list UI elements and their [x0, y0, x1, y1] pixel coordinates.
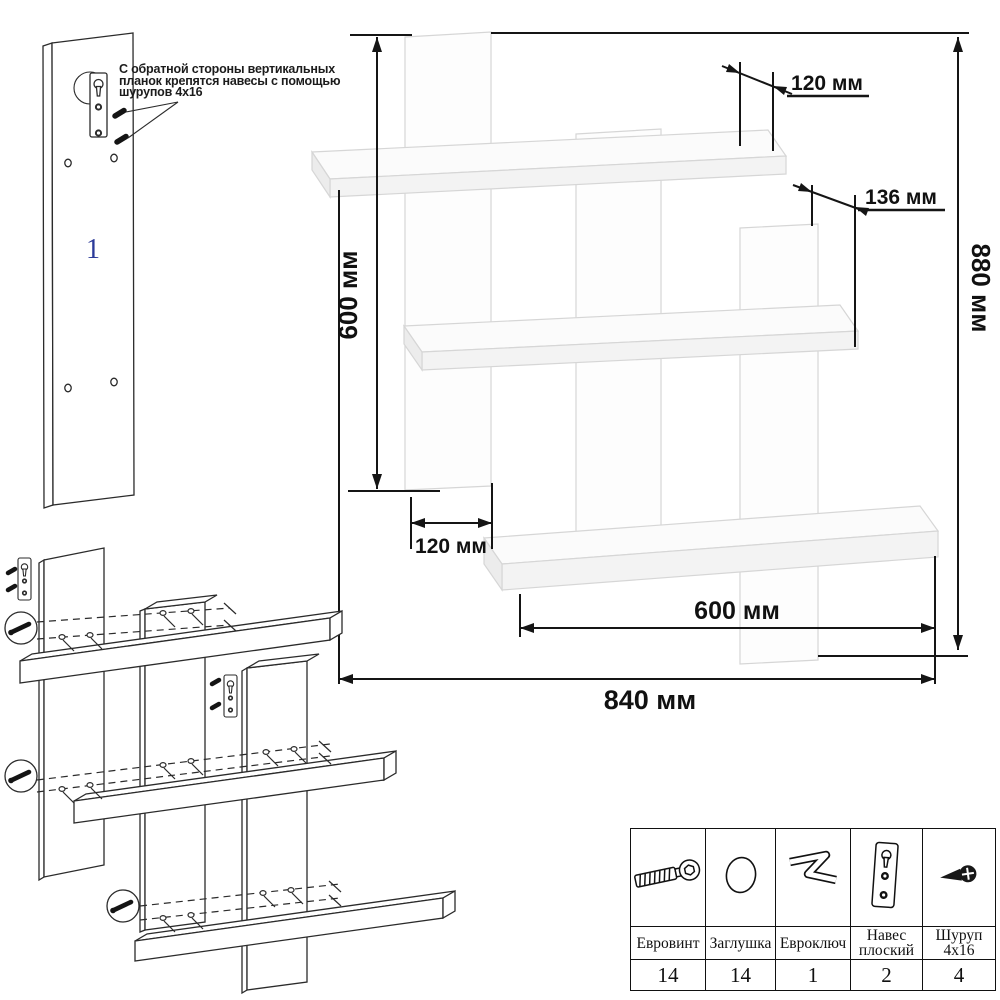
dim-plank-width: 120 мм [415, 535, 487, 558]
screw-4x16-icon [924, 829, 994, 921]
euro-screw-icon [633, 829, 703, 921]
exploded-view [5, 548, 455, 993]
screw-4x16-icon [212, 680, 219, 684]
drill-hole [65, 384, 71, 392]
drill-hole [111, 154, 117, 162]
single-plank-figure [43, 33, 178, 508]
part-number-label: 1 [86, 234, 100, 265]
part-qty: 4 [923, 960, 996, 991]
part-qty: 14 [631, 960, 706, 991]
flat-hanger-icon [852, 829, 922, 921]
cap-icon [706, 829, 776, 921]
dim-top-plank-offset: 120 мм [791, 72, 863, 95]
euro-screw-callout-3 [107, 890, 139, 922]
parts-icon-row [631, 829, 996, 927]
part-qty: 14 [706, 960, 776, 991]
euro-screw-callout-2 [5, 760, 37, 792]
dim-left-plank-height: 600 мм [333, 250, 363, 339]
vertical-plank-left [405, 32, 491, 490]
dim-right-plank-offset: 136 мм [865, 186, 937, 209]
euro-screw-callout-1 [5, 612, 37, 644]
main-shelf-drawing [312, 32, 938, 664]
iso-shelf-middle [74, 751, 396, 823]
dim-total-height: 880 мм [966, 243, 996, 332]
parts-qty-row: 14 14 1 2 4 [631, 960, 996, 991]
part-name: Шуруп 4x16 [923, 927, 996, 960]
hardware-parts-table: Евровинт Заглушка Евроключ Навес плоский… [630, 828, 996, 991]
drill-hole [65, 159, 71, 167]
screw-4x16-icon [8, 586, 15, 590]
annotation-line: шурупов 4x16 [119, 87, 379, 99]
shelf-bottom [484, 506, 938, 590]
part-name: Евроключ [776, 927, 851, 960]
drill-hole [111, 378, 117, 386]
part-qty: 2 [851, 960, 923, 991]
screw-4x16-icon [212, 704, 219, 708]
plank-side-face [43, 43, 53, 508]
mounting-annotation: С обратной стороны вертикальных планок к… [119, 64, 379, 99]
hex-key-icon [778, 829, 848, 921]
dim-shelf-length: 600 мм [694, 597, 780, 625]
part-name: Навес плоский [851, 927, 923, 960]
part-name: Заглушка [706, 927, 776, 960]
parts-name-row: Евровинт Заглушка Евроключ Навес плоский… [631, 927, 996, 960]
screw-4x16-icon [8, 569, 15, 573]
keyhole-hanger-plate [90, 73, 107, 137]
leader-line [128, 102, 178, 138]
iso-hanger-plate-2 [212, 675, 237, 717]
iso-hanger-plate-1 [8, 558, 31, 600]
assembly-instruction-page: 120 мм 136 мм 600 мм 880 мм 120 мм 600 м… [0, 0, 1000, 1000]
iso-plank-left [44, 548, 104, 877]
part-qty: 1 [776, 960, 851, 991]
dim-total-width: 840 мм [604, 685, 697, 715]
shelf-top [312, 130, 786, 197]
part-name: Евровинт [631, 927, 706, 960]
